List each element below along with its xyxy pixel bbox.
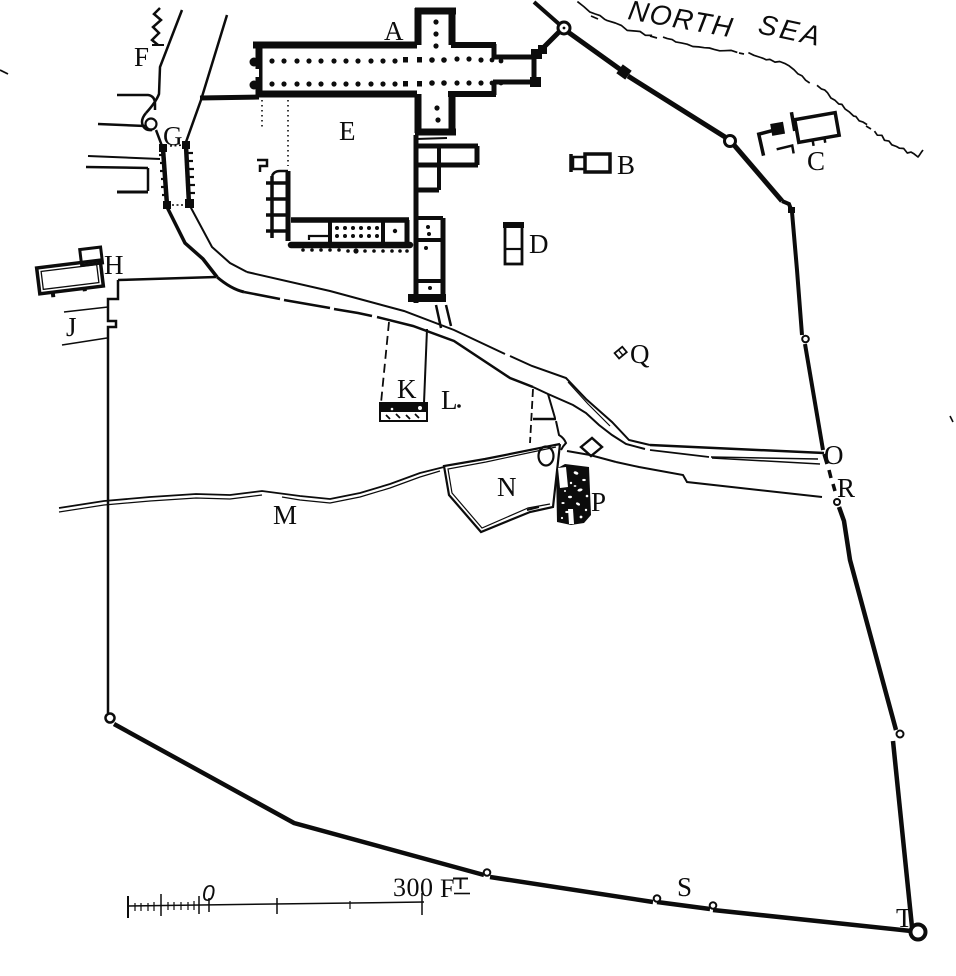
svg-text:D: D (529, 229, 549, 259)
svg-text:K: K (397, 374, 417, 404)
svg-text:R: R (837, 473, 855, 503)
svg-text:T: T (896, 903, 913, 933)
svg-text:J: J (66, 312, 77, 342)
svg-text:G: G (163, 121, 183, 151)
svg-text:E: E (339, 116, 356, 146)
svg-text:B: B (617, 150, 635, 180)
svg-text:A: A (384, 16, 404, 46)
svg-text:0: 0 (202, 880, 215, 906)
svg-text:S: S (677, 872, 692, 902)
svg-text:L: L (441, 385, 458, 415)
svg-text:N: N (497, 472, 517, 502)
svg-text:P: P (591, 487, 606, 517)
svg-text:M: M (273, 500, 297, 530)
svg-text:Q: Q (630, 339, 650, 369)
svg-text:300: 300 (393, 873, 434, 902)
svg-text:F: F (440, 874, 454, 903)
svg-text:O: O (824, 440, 844, 470)
svg-text:F: F (134, 42, 149, 72)
svg-text:C: C (807, 146, 825, 176)
svg-text:H: H (104, 250, 124, 280)
